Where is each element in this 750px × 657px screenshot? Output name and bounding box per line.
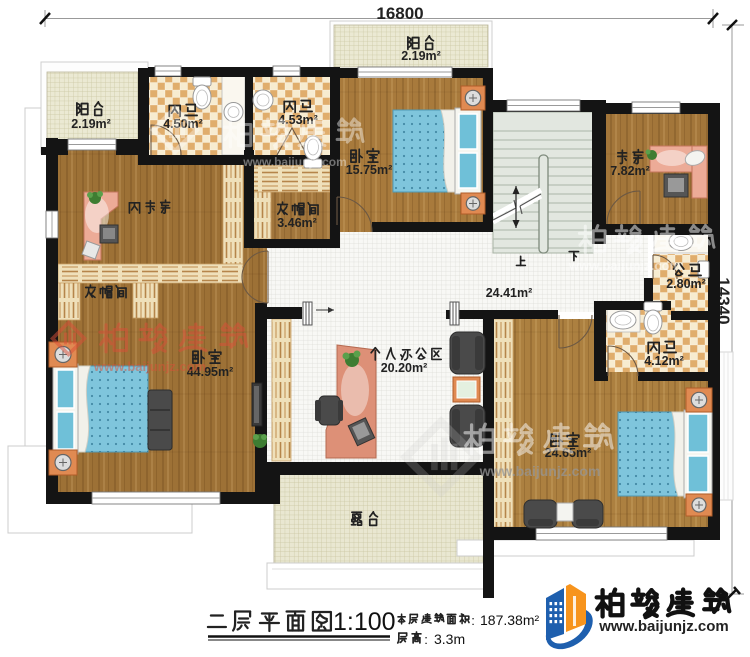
svg-text:www.baijunjz.com: www.baijunjz.com xyxy=(479,463,601,479)
svg-text:www.baijunjz.com: www.baijunjz.com xyxy=(93,359,206,374)
svg-text:4.12m²: 4.12m² xyxy=(644,354,684,368)
svg-text:15.75m²: 15.75m² xyxy=(346,163,393,177)
svg-text:www.baijunjz.com: www.baijunjz.com xyxy=(568,258,681,273)
svg-text:16800: 16800 xyxy=(376,4,423,23)
svg-text:3.3m: 3.3m xyxy=(434,631,465,647)
svg-text:www.baijunjz.com: www.baijunjz.com xyxy=(242,155,347,169)
svg-text:2.19m²: 2.19m² xyxy=(401,49,441,63)
svg-text::: : xyxy=(471,613,475,628)
svg-text:7.82m²: 7.82m² xyxy=(610,164,650,178)
svg-text:24.41m²: 24.41m² xyxy=(486,286,533,300)
svg-text:1:100: 1:100 xyxy=(333,608,396,636)
svg-text:4.53m²: 4.53m² xyxy=(278,113,318,127)
svg-text:www.baijunjz.com: www.baijunjz.com xyxy=(598,618,728,635)
svg-text:2.80m²: 2.80m² xyxy=(666,277,706,291)
svg-text:187.38m²: 187.38m² xyxy=(480,612,539,628)
svg-text:2.19m²: 2.19m² xyxy=(71,117,111,131)
svg-text:3.46m²: 3.46m² xyxy=(277,216,317,230)
svg-text::: : xyxy=(424,632,428,647)
svg-text:20.20m²: 20.20m² xyxy=(381,361,428,375)
